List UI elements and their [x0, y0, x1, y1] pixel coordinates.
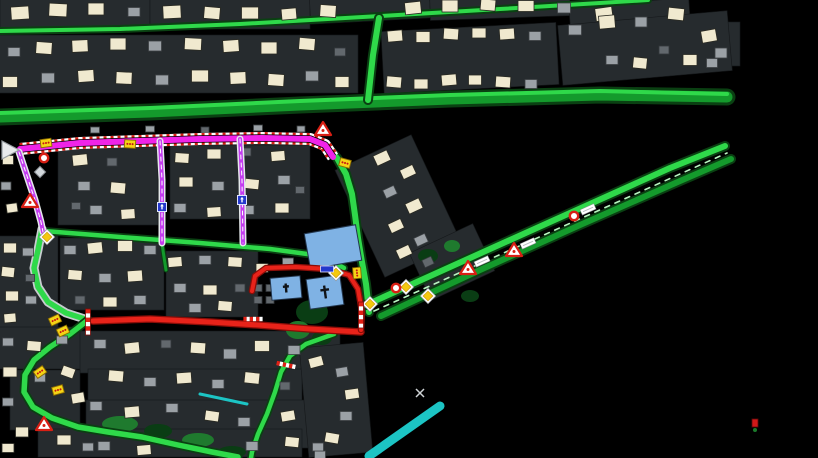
building: [174, 284, 186, 293]
building: [416, 32, 430, 43]
building: [98, 442, 110, 451]
marker-barrier-pole[interactable]: [86, 309, 91, 335]
marker-blue-rect[interactable]: [321, 266, 334, 272]
building: [78, 69, 95, 82]
building: [255, 341, 270, 352]
building: [204, 6, 221, 19]
building: [204, 410, 219, 422]
building: [72, 154, 88, 167]
building: [335, 77, 349, 88]
building: [386, 76, 402, 88]
building: [275, 203, 289, 213]
building: [335, 48, 346, 56]
building: [280, 410, 296, 422]
marker-gray-diamond[interactable]: [34, 166, 45, 177]
building: [36, 41, 53, 54]
building: [299, 37, 316, 50]
building: [230, 72, 247, 85]
building: [57, 336, 68, 344]
marker-blue-square[interactable]: [238, 196, 247, 205]
building: [4, 313, 17, 323]
church-building: [304, 225, 361, 269]
building: [324, 432, 340, 444]
map-canvas[interactable]: [0, 0, 818, 458]
building: [124, 406, 140, 418]
building: [344, 388, 359, 400]
building: [88, 3, 104, 15]
building: [296, 187, 305, 194]
building: [87, 242, 103, 255]
marker-prohibition-ring[interactable]: [392, 284, 400, 292]
building: [1, 182, 11, 190]
building: [569, 25, 582, 35]
building: [57, 435, 71, 445]
building: [144, 378, 156, 387]
building: [207, 149, 221, 159]
building: [16, 427, 29, 437]
building: [404, 1, 421, 15]
building: [288, 346, 300, 355]
building: [271, 150, 286, 161]
building: [75, 296, 85, 304]
marker-yellow-plate[interactable]: [124, 140, 136, 149]
building: [161, 340, 171, 348]
church-building: [306, 275, 344, 309]
building: [254, 125, 263, 131]
vegetation-patch: [461, 290, 479, 302]
building: [3, 77, 18, 88]
building: [103, 297, 117, 307]
building: [94, 340, 106, 349]
building: [472, 28, 486, 38]
building: [441, 74, 457, 86]
building: [107, 158, 117, 166]
building: [254, 297, 262, 304]
building: [480, 0, 496, 11]
marker-yellow-plate[interactable]: [40, 138, 52, 147]
building: [99, 274, 111, 283]
building: [414, 79, 428, 89]
building: [268, 73, 285, 86]
building: [3, 398, 14, 406]
building: [525, 80, 537, 89]
building: [306, 71, 319, 81]
building: [244, 372, 260, 385]
building: [26, 275, 35, 282]
building: [245, 178, 260, 189]
building: [529, 32, 541, 41]
building: [387, 30, 403, 42]
building: [246, 442, 258, 451]
marker-dashed-bar[interactable]: [243, 317, 262, 321]
building: [201, 127, 209, 133]
vegetation-patch: [444, 240, 460, 252]
building: [228, 257, 243, 268]
building: [715, 48, 727, 58]
building: [281, 8, 297, 20]
building: [26, 296, 37, 304]
marker-gray-x[interactable]: [416, 389, 424, 397]
building: [701, 29, 718, 43]
building: [72, 203, 81, 210]
building: [218, 300, 233, 311]
building: [90, 206, 102, 215]
building: [632, 57, 647, 69]
building: [499, 28, 515, 40]
building: [118, 241, 133, 252]
building: [495, 76, 511, 88]
building: [49, 3, 68, 17]
building: [261, 42, 277, 54]
building: [2, 444, 14, 453]
map-viewport: [0, 0, 818, 458]
building: [176, 372, 192, 384]
building: [8, 48, 20, 57]
building: [190, 342, 206, 354]
building: [6, 291, 19, 301]
building: [174, 204, 186, 213]
building: [156, 75, 169, 85]
building: [11, 6, 30, 20]
building: [635, 17, 647, 27]
building: [189, 304, 201, 313]
building: [442, 0, 458, 12]
building: [340, 412, 352, 421]
building: [71, 392, 86, 404]
building: [212, 182, 224, 191]
building: [166, 404, 178, 413]
building: [6, 203, 18, 213]
building: [242, 7, 259, 19]
building: [128, 8, 140, 17]
building: [3, 338, 14, 346]
building: [64, 246, 76, 255]
building: [280, 382, 290, 390]
building: [659, 46, 669, 54]
building: [175, 153, 190, 164]
building: [3, 367, 17, 377]
building: [315, 451, 326, 458]
building: [68, 269, 83, 280]
building: [297, 126, 305, 132]
marker-blue-square[interactable]: [158, 203, 167, 212]
building: [518, 1, 534, 12]
building: [149, 41, 162, 51]
building: [110, 38, 126, 50]
building: [223, 39, 240, 52]
building: [42, 73, 55, 83]
building: [163, 5, 182, 19]
marker-warning-triangle[interactable]: [315, 122, 331, 135]
building: [606, 56, 618, 65]
building: [144, 246, 156, 255]
building: [203, 285, 217, 295]
building: [443, 28, 459, 40]
building: [4, 243, 17, 253]
building: [110, 182, 126, 194]
marker-prohibition-ring[interactable]: [40, 154, 48, 162]
building: [124, 342, 140, 355]
building: [116, 72, 133, 85]
building: [134, 296, 146, 305]
building: [224, 349, 237, 359]
marker-yellow-plate[interactable]: [353, 267, 362, 279]
building: [108, 370, 124, 382]
building: [146, 126, 155, 132]
building: [313, 443, 324, 451]
building: [598, 15, 615, 29]
building: [707, 59, 718, 68]
building: [1, 266, 15, 277]
marker-barrier-pole[interactable]: [359, 302, 364, 328]
marker-red-flag[interactable]: [752, 419, 758, 432]
building: [192, 70, 209, 82]
building: [212, 380, 224, 389]
building: [335, 367, 348, 378]
building: [137, 444, 152, 455]
building: [667, 7, 684, 21]
building: [78, 182, 90, 191]
building: [91, 127, 100, 133]
church-building: [270, 276, 302, 301]
building: [168, 256, 183, 267]
building: [199, 256, 211, 265]
building: [558, 3, 571, 13]
building: [90, 402, 102, 411]
building: [235, 284, 245, 292]
building: [23, 248, 34, 256]
building: [683, 55, 697, 66]
building: [127, 270, 143, 282]
building: [469, 75, 482, 85]
building: [285, 436, 300, 447]
building: [83, 443, 94, 451]
building: [179, 177, 193, 187]
building: [320, 4, 337, 17]
building: [184, 38, 202, 51]
building: [207, 207, 222, 218]
building: [238, 418, 250, 427]
building: [278, 176, 290, 185]
building: [121, 209, 136, 220]
building: [72, 40, 89, 53]
building: [27, 340, 42, 351]
